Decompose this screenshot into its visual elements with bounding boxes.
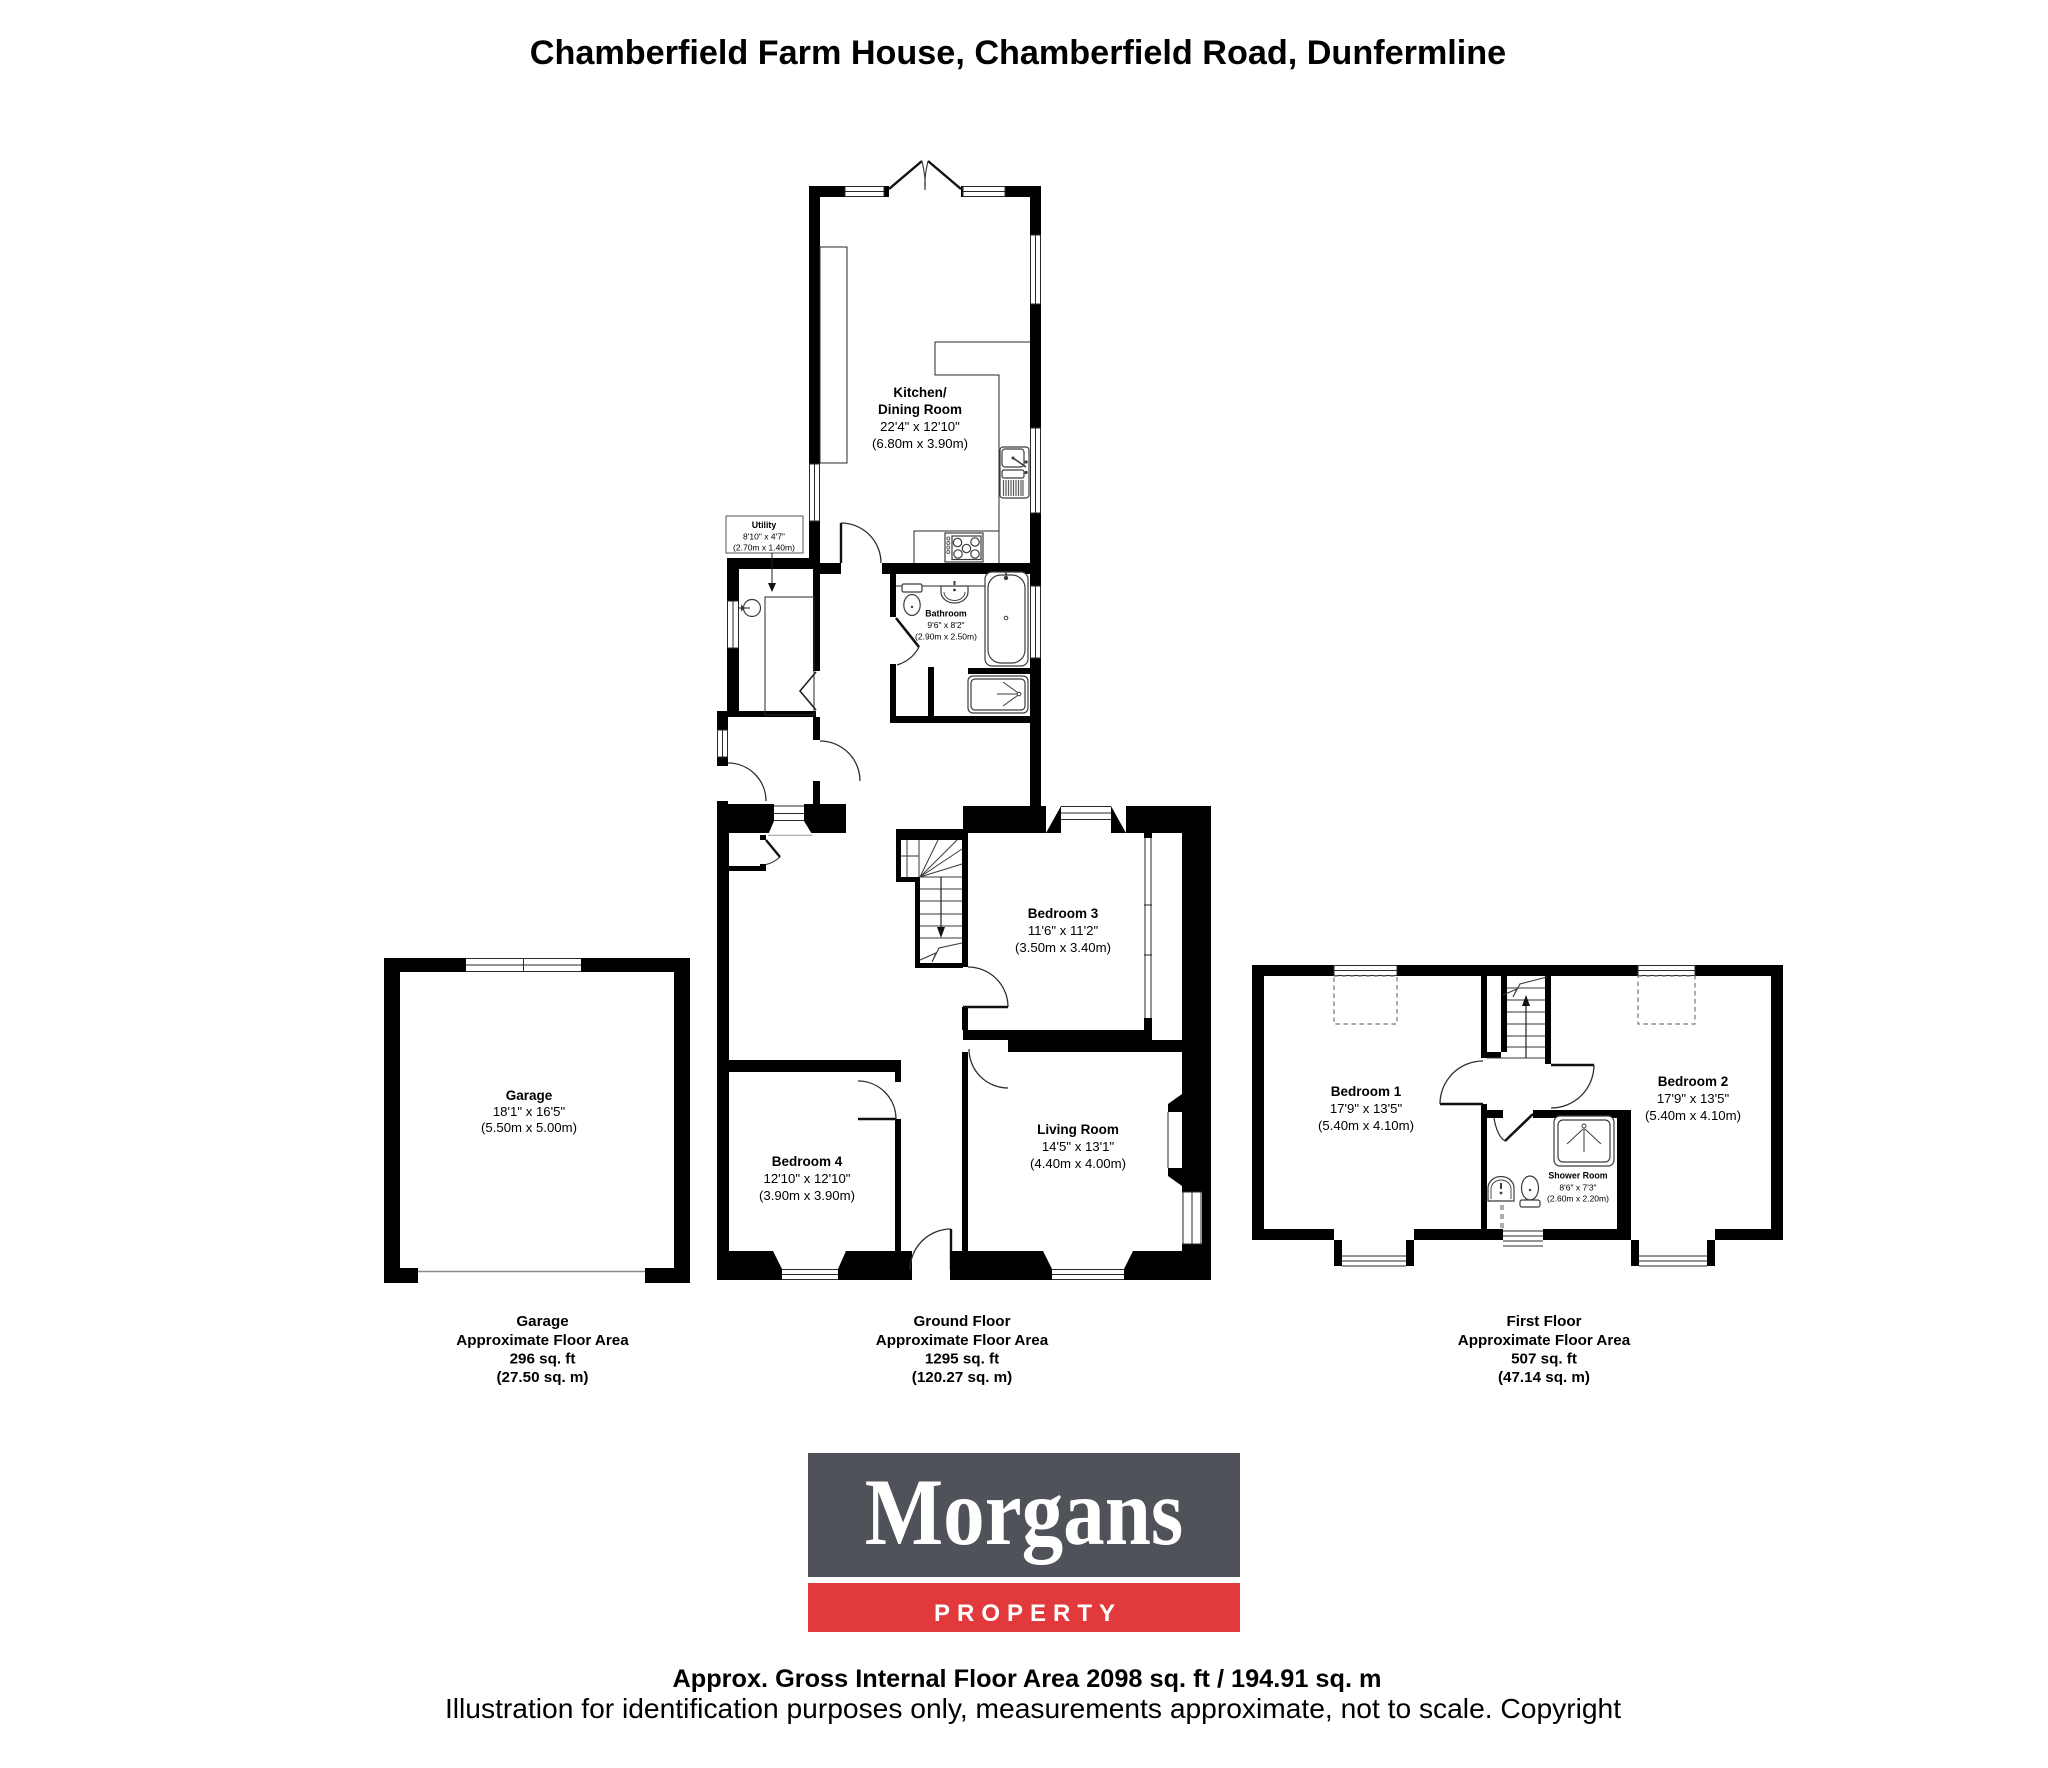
svg-text:(5.50m x 5.00m): (5.50m x 5.00m) (481, 1120, 577, 1135)
svg-text:9'6" x 8'2": 9'6" x 8'2" (927, 620, 964, 630)
svg-text:507 sq. ft: 507 sq. ft (1511, 1351, 1577, 1368)
svg-text:(3.50m x 3.40m): (3.50m x 3.40m) (1015, 940, 1111, 955)
svg-text:Illustration for identificatio: Illustration for identification purposes… (445, 1692, 1621, 1724)
svg-text:Kitchen/: Kitchen/ (893, 385, 947, 400)
svg-text:(3.90m x 3.90m): (3.90m x 3.90m) (759, 1188, 855, 1203)
svg-text:First Floor: First Floor (1506, 1313, 1581, 1330)
svg-text:Bedroom 2: Bedroom 2 (1658, 1074, 1729, 1089)
svg-text:Approximate Floor Area: Approximate Floor Area (876, 1332, 1049, 1349)
svg-text:Bedroom 1: Bedroom 1 (1331, 1084, 1402, 1099)
svg-text:Bathroom: Bathroom (925, 609, 967, 619)
svg-text:8'6" x 7'3": 8'6" x 7'3" (1559, 1183, 1596, 1193)
svg-text:(2.70m x 1.40m): (2.70m x 1.40m) (733, 543, 795, 553)
svg-text:PROPERTY: PROPERTY (934, 1600, 1122, 1627)
svg-text:Bedroom 3: Bedroom 3 (1028, 906, 1099, 921)
svg-text:11'6" x 11'2": 11'6" x 11'2" (1028, 923, 1099, 938)
svg-text:(2.60m x 2.20m): (2.60m x 2.20m) (1547, 1194, 1609, 1204)
svg-text:Garage: Garage (506, 1088, 553, 1103)
svg-text:Living Room: Living Room (1037, 1122, 1119, 1137)
svg-text:8'10" x 4'7": 8'10" x 4'7" (743, 532, 785, 542)
svg-text:(2.90m x 2.50m): (2.90m x 2.50m) (915, 632, 977, 642)
svg-text:Utility: Utility (752, 520, 777, 530)
svg-text:(120.27 sq. m): (120.27 sq. m) (912, 1369, 1012, 1386)
svg-text:Garage: Garage (516, 1313, 568, 1330)
svg-text:1295 sq. ft: 1295 sq. ft (925, 1351, 999, 1368)
svg-text:17'9" x 13'5": 17'9" x 13'5" (1330, 1101, 1403, 1116)
svg-text:Approx. Gross Internal Floor A: Approx. Gross Internal Floor Area 2098 s… (672, 1665, 1381, 1693)
svg-text:(6.80m x 3.90m): (6.80m x 3.90m) (872, 436, 968, 451)
svg-text:296 sq. ft: 296 sq. ft (510, 1351, 576, 1368)
svg-text:(47.14 sq. m): (47.14 sq. m) (1498, 1369, 1590, 1386)
svg-text:12'10" x 12'10": 12'10" x 12'10" (764, 1171, 851, 1186)
svg-text:Approximate Floor Area: Approximate Floor Area (456, 1332, 629, 1349)
svg-text:(5.40m x 4.10m): (5.40m x 4.10m) (1318, 1118, 1414, 1133)
svg-text:Morgans: Morgans (865, 1460, 1184, 1565)
svg-text:Ground Floor: Ground Floor (913, 1313, 1010, 1330)
svg-text:Chamberfield Farm House, Chamb: Chamberfield Farm House, Chamberfield Ro… (530, 34, 1506, 72)
svg-text:(4.40m x 4.00m): (4.40m x 4.00m) (1030, 1156, 1126, 1171)
svg-text:Bedroom 4: Bedroom 4 (772, 1154, 843, 1169)
svg-text:14'5" x 13'1": 14'5" x 13'1" (1042, 1139, 1115, 1154)
svg-text:(27.50 sq. m): (27.50 sq. m) (496, 1369, 588, 1386)
svg-text:(5.40m x 4.10m): (5.40m x 4.10m) (1645, 1108, 1741, 1123)
svg-text:Approximate Floor Area: Approximate Floor Area (1458, 1332, 1631, 1349)
svg-text:18'1" x 16'5": 18'1" x 16'5" (493, 1104, 566, 1119)
svg-text:Dining Room: Dining Room (878, 402, 962, 417)
svg-text:Shower Room: Shower Room (1548, 1171, 1607, 1181)
svg-text:22'4" x 12'10": 22'4" x 12'10" (880, 419, 960, 434)
svg-text:17'9" x 13'5": 17'9" x 13'5" (1657, 1091, 1730, 1106)
